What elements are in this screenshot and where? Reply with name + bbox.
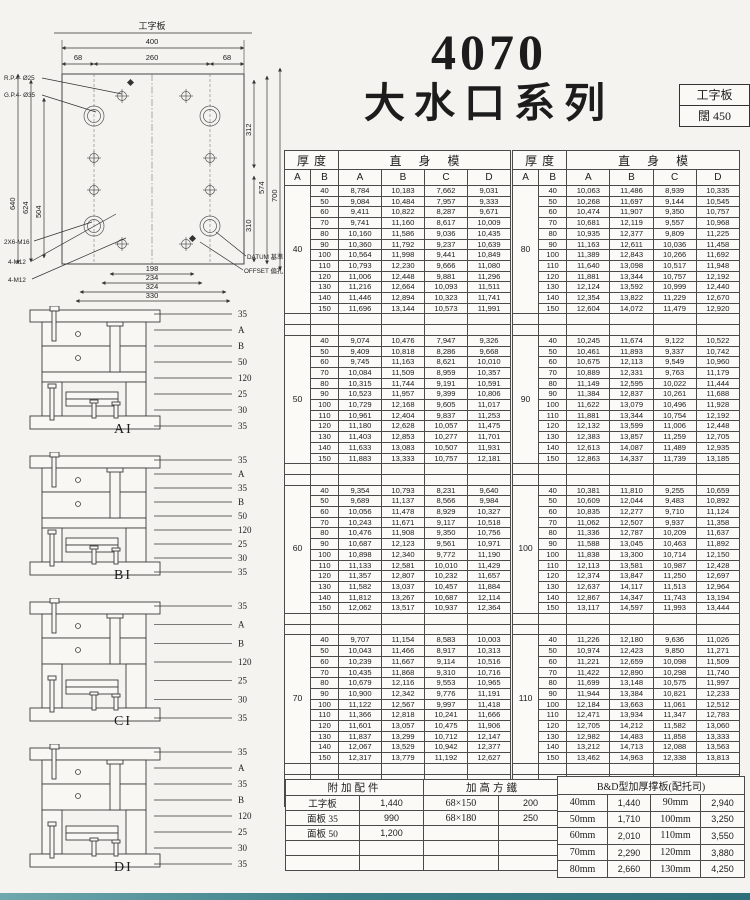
value-cell: 13,267 — [382, 592, 425, 603]
model-number: 4070 — [318, 26, 660, 78]
subheader-row: ABABCD — [285, 170, 511, 186]
column-header: D — [468, 170, 511, 186]
data-row: 8011,33612,78710,20911,637 — [513, 528, 740, 539]
value-cell: 2,660 — [608, 861, 651, 878]
value-cell: 11,812 — [339, 592, 382, 603]
mold-section-sketch: 35AB50120253035 — [26, 306, 278, 434]
straight-mold-header: 直身模 — [567, 151, 740, 170]
section-thickness-a: 100 — [513, 485, 539, 613]
value-cell: 9,255 — [653, 485, 696, 496]
value-cell: 10,381 — [567, 485, 610, 496]
value-cell: 11,509 — [696, 656, 739, 667]
data-row: 11011,88113,34410,75412,192 — [513, 410, 740, 421]
blank-cell — [425, 464, 468, 475]
thickness-b-cell: 90 — [311, 688, 339, 699]
thickness-b-cell: 150 — [311, 453, 339, 464]
value-cell: 12,894 — [382, 293, 425, 304]
value-cell: 9,671 — [468, 207, 511, 218]
value-cell: 11,892 — [696, 539, 739, 550]
blank-cell — [285, 474, 311, 485]
value-cell: 8,286 — [425, 346, 468, 357]
value-cell: 14,483 — [610, 731, 653, 742]
data-row: 14011,44612,89410,32311,741 — [285, 293, 511, 304]
callout-label: 35 — [238, 747, 248, 757]
thickness-b-cell: 130 — [539, 432, 567, 443]
thickness-b-cell: 150 — [311, 303, 339, 314]
blank-cell — [339, 325, 382, 336]
value-cell: 12,377 — [610, 228, 653, 239]
blank-cell — [382, 474, 425, 485]
size-cell: 110mm — [651, 828, 701, 845]
section-thickness-a: 90 — [513, 335, 539, 463]
value-cell: 9,411 — [339, 207, 382, 218]
data-row: 15013,46214,96312,33813,813 — [513, 753, 740, 764]
data-row: 14012,86714,34711,74313,194 — [513, 592, 740, 603]
header-row: 附加配件加高方鐵 — [286, 780, 563, 796]
value-cell: 11,226 — [567, 635, 610, 646]
value-cell: 7,662 — [425, 186, 468, 197]
value-cell: 13,847 — [610, 571, 653, 582]
value-cell: 9,776 — [425, 688, 468, 699]
accessories-table: 附加配件加高方鐵工字板1,44068×150200面板 3599068×1802… — [285, 779, 563, 871]
subheader-row: ABABCD — [513, 170, 740, 186]
mold-plate-plan-drawing: 工字板 400 68 260 68 640 624 504 312 310 57… — [4, 18, 306, 306]
value-cell: 11,154 — [382, 635, 425, 646]
value-cell — [499, 826, 563, 841]
value-cell: 10,942 — [425, 742, 468, 753]
data-row: 1104011,22612,1809,63611,026 — [513, 635, 740, 646]
value-cell: 8,617 — [425, 218, 468, 229]
value-cell: 13,599 — [610, 421, 653, 432]
table-row: 80mm2,660130mm4,250 — [558, 861, 745, 878]
thickness-b-cell: 60 — [539, 656, 567, 667]
thickness-b-cell: 110 — [311, 410, 339, 421]
value-cell: 9,997 — [425, 699, 468, 710]
thickness-b-cell: 50 — [539, 346, 567, 357]
value-cell: 12,670 — [696, 293, 739, 304]
value-cell: 11,513 — [653, 581, 696, 592]
spacer-row — [285, 763, 511, 774]
value-cell: 12,184 — [567, 699, 610, 710]
size-cell: 70mm — [558, 844, 608, 861]
thickness-b-cell: 70 — [311, 367, 339, 378]
data-row: 8011,69913,14810,57511,997 — [513, 678, 740, 689]
data-row: 14012,06713,52910,94212,377 — [285, 742, 511, 753]
value-cell: 9,031 — [468, 186, 511, 197]
value-cell: 10,098 — [653, 656, 696, 667]
value-cell: 10,575 — [653, 678, 696, 689]
spacer-row — [285, 614, 511, 625]
value-cell: 11,336 — [567, 528, 610, 539]
value-cell: 12,982 — [567, 731, 610, 742]
data-row: 8010,47611,9089,35010,756 — [285, 528, 511, 539]
value-cell: 4,250 — [701, 861, 745, 878]
value-cell: 13,934 — [610, 710, 653, 721]
value-cell: 12,920 — [696, 303, 739, 314]
value-cell: 11,475 — [468, 421, 511, 432]
blank-cell — [513, 464, 539, 475]
value-cell: 11,957 — [382, 389, 425, 400]
data-row: 13012,63714,11711,51312,964 — [513, 581, 740, 592]
thickness-b-cell: 140 — [539, 742, 567, 753]
value-cell: 11,179 — [696, 367, 739, 378]
column-header: A — [339, 170, 382, 186]
value-cell: 12,340 — [382, 549, 425, 560]
value-cell: 11,124 — [696, 507, 739, 518]
value-cell: 13,185 — [696, 453, 739, 464]
dim-504: 504 — [34, 205, 43, 218]
data-row: 13012,98214,48311,85813,333 — [513, 731, 740, 742]
column-header: B — [382, 170, 425, 186]
data-row: 10011,12212,5679,99711,418 — [285, 699, 511, 710]
value-cell: 14,072 — [610, 303, 653, 314]
thickness-b-cell: 140 — [311, 442, 339, 453]
data-row: 6010,67512,1139,54910,960 — [513, 357, 740, 368]
value-cell: 11,389 — [567, 250, 610, 261]
value-cell: 11,657 — [468, 571, 511, 582]
blank-cell — [567, 474, 610, 485]
spec-box: 工字板 闊 450 — [679, 84, 750, 127]
value-cell: 10,063 — [567, 186, 610, 197]
value-cell: 11,697 — [610, 196, 653, 207]
dim-198: 198 — [146, 264, 159, 273]
value-cell: 10,754 — [653, 410, 696, 421]
value-cell: 13,194 — [696, 592, 739, 603]
callout-label: B — [238, 795, 244, 805]
value-cell: 12,062 — [339, 603, 382, 614]
value-cell: 12,628 — [382, 421, 425, 432]
data-row: 11011,13312,58110,01011,429 — [285, 560, 511, 571]
value-cell: 2,290 — [608, 844, 651, 861]
value-cell: 12,843 — [610, 250, 653, 261]
value-cell: 10,935 — [567, 228, 610, 239]
column-header: A — [285, 170, 311, 186]
value-cell: 10,757 — [425, 453, 468, 464]
blank-cell — [696, 763, 739, 774]
m12-label-b: 4-M12 — [8, 277, 26, 284]
value-cell: 10,898 — [339, 549, 382, 560]
blank-cell — [311, 474, 339, 485]
value-cell: 11,160 — [382, 218, 425, 229]
value-cell: 9,553 — [425, 678, 468, 689]
value-cell: 12,342 — [382, 688, 425, 699]
value-cell: 11,296 — [468, 271, 511, 282]
thickness-b-cell: 130 — [311, 731, 339, 742]
callout-label: 30 — [238, 843, 248, 853]
value-cell: 11,062 — [567, 517, 610, 528]
value-cell: 10,900 — [339, 688, 382, 699]
thickness-header: 厚度 — [285, 151, 339, 170]
callout-label: 35 — [238, 483, 248, 493]
value-cell: 12,664 — [382, 282, 425, 293]
section-thickness-a: 40 — [285, 186, 311, 314]
section-thickness-a: 60 — [285, 485, 311, 613]
value-cell: 10,961 — [339, 410, 382, 421]
thickness-b-cell: 110 — [539, 410, 567, 421]
value-cell: 11,384 — [567, 389, 610, 400]
data-row: 12011,35712,80710,23211,657 — [285, 571, 511, 582]
blank-cell — [468, 474, 511, 485]
blank-cell — [696, 474, 739, 485]
size-cell: 120mm — [651, 844, 701, 861]
spacer-row — [513, 763, 740, 774]
blank-cell — [539, 474, 567, 485]
value-cell: 9,557 — [653, 218, 696, 229]
data-row: 9010,36011,7929,23710,639 — [285, 239, 511, 250]
size-cell: 60mm — [558, 828, 608, 845]
thickness-b-cell: 70 — [539, 218, 567, 229]
value-cell: 11,122 — [339, 699, 382, 710]
value-cell: 11,637 — [696, 528, 739, 539]
value-cell: 9,074 — [339, 335, 382, 346]
value-cell: 12,659 — [610, 656, 653, 667]
table-row — [286, 856, 563, 871]
thickness-b-cell: 150 — [539, 303, 567, 314]
value-cell: 9,036 — [425, 228, 468, 239]
thickness-b-cell: 40 — [311, 186, 339, 197]
data-row: 12011,18012,62810,05711,475 — [285, 421, 511, 432]
blank-cell — [285, 763, 311, 774]
value-cell: 10,806 — [468, 389, 511, 400]
value-cell: 12,807 — [382, 571, 425, 582]
dim-400: 400 — [146, 37, 159, 46]
value-cell: 10,277 — [425, 432, 468, 443]
data-row: 12012,13213,59911,00612,448 — [513, 421, 740, 432]
value-cell: 11,221 — [567, 656, 610, 667]
value-cell: 9,409 — [339, 346, 382, 357]
data-row: 8010,93512,3779,80911,225 — [513, 228, 740, 239]
thickness-b-cell: 150 — [311, 753, 339, 764]
data-row: 10010,72912,1689,60511,017 — [285, 400, 511, 411]
value-cell: 9,549 — [653, 357, 696, 368]
value-cell: 8,929 — [425, 507, 468, 518]
value-cell: 11,739 — [653, 453, 696, 464]
value-cell: 11,906 — [468, 721, 511, 732]
value-cell: 13,344 — [610, 271, 653, 282]
section-thickness-a: 80 — [513, 186, 539, 314]
blank-cell — [539, 614, 567, 625]
callout-label: 35 — [238, 567, 248, 577]
thickness-b-cell: 40 — [539, 335, 567, 346]
value-cell: 12,428 — [696, 560, 739, 571]
data-row: 5010,26811,6979,14410,545 — [513, 196, 740, 207]
data-row: 15011,88313,33310,75712,181 — [285, 453, 511, 464]
value-cell: 10,889 — [567, 367, 610, 378]
value-cell: 10,675 — [567, 357, 610, 368]
dim-324: 324 — [146, 282, 159, 291]
value-cell: 9,984 — [468, 496, 511, 507]
section-thickness-a: 110 — [513, 635, 539, 763]
callout-label: 30 — [238, 553, 248, 563]
mold-section-diagram: 35AB50120253035AI — [26, 306, 282, 452]
thickness-b-cell: 70 — [539, 517, 567, 528]
value-cell: 10,892 — [696, 496, 739, 507]
value-cell: 9,636 — [653, 635, 696, 646]
value-cell: 11,991 — [468, 303, 511, 314]
value-cell: 9,350 — [425, 528, 468, 539]
bd-thick-plate-table: B&D型加厚撑板(配托司)40mm1,44090mm2,94050mm1,710… — [557, 776, 745, 878]
data-row: 14012,61314,08711,48912,935 — [513, 442, 740, 453]
value-cell: 10,484 — [382, 196, 425, 207]
value-cell: 12,377 — [468, 742, 511, 753]
value-cell: 11,674 — [610, 335, 653, 346]
thickness-b-cell: 120 — [539, 271, 567, 282]
mold-section-sketch: 35A35B50120253035 — [26, 452, 278, 580]
callout-label: B — [238, 638, 244, 648]
blank-cell — [382, 763, 425, 774]
section-diagrams: 35AB50120253035AI35A35B50120253035BI35AB… — [26, 306, 282, 890]
value-cell: 9,144 — [653, 196, 696, 207]
blank-cell — [339, 763, 382, 774]
value-cell: 11,699 — [567, 678, 610, 689]
thickness-b-cell: 90 — [539, 239, 567, 250]
mold-section-diagram: 35A35B50120253035BI — [26, 452, 282, 598]
thickness-b-cell: 100 — [539, 400, 567, 411]
value-cell: 12,180 — [610, 635, 653, 646]
value-cell: 13,813 — [696, 753, 739, 764]
blank-cell — [653, 474, 696, 485]
value-cell: 11,149 — [567, 378, 610, 389]
value-cell: 11,944 — [567, 688, 610, 699]
blank-cell — [468, 624, 511, 635]
accessories-header: 附加配件 — [286, 780, 424, 796]
thickness-b-cell: 110 — [311, 560, 339, 571]
value-cell: 14,337 — [610, 453, 653, 464]
data-row: 15012,06213,51710,93712,364 — [285, 603, 511, 614]
value-cell: 11,881 — [567, 271, 610, 282]
dim-68-right: 68 — [223, 53, 231, 62]
header-row: B&D型加厚撑板(配托司) — [558, 777, 745, 795]
blank-cell — [425, 474, 468, 485]
dim-640: 640 — [8, 197, 17, 210]
value-cell: 10,679 — [339, 678, 382, 689]
size-cell — [424, 841, 499, 856]
blank-cell — [696, 325, 739, 336]
riser-block-header: 加高方鐵 — [424, 780, 563, 796]
blank-cell — [513, 763, 539, 774]
value-cell: 9,689 — [339, 496, 382, 507]
data-row: 10011,38912,84310,26611,692 — [513, 250, 740, 261]
callout-label: A — [238, 325, 245, 335]
spacer-row — [513, 624, 740, 635]
value-cell: 11,692 — [696, 250, 739, 261]
column-header: A — [567, 170, 610, 186]
dim-624: 624 — [21, 201, 30, 214]
value-cell: 11,080 — [468, 260, 511, 271]
callout-label: 50 — [238, 511, 248, 521]
value-cell: 10,793 — [382, 485, 425, 496]
thickness-b-cell: 130 — [311, 581, 339, 592]
data-row: 13012,38313,85711,25912,705 — [513, 432, 740, 443]
offset-label: OFFSET 偏孔 — [244, 266, 284, 275]
thickness-b-cell: 70 — [539, 367, 567, 378]
data-row: 804010,06311,4868,93910,335 — [513, 186, 740, 197]
callout-label: 30 — [238, 694, 248, 704]
data-row: 509,68911,1378,5669,984 — [285, 496, 511, 507]
value-cell: 10,523 — [339, 389, 382, 400]
callout-label: 35 — [238, 421, 248, 431]
thickness-b-cell: 100 — [539, 699, 567, 710]
data-row: 609,41110,8228,2879,671 — [285, 207, 511, 218]
value-cell: 10,968 — [696, 218, 739, 229]
value-cell: 12,581 — [382, 560, 425, 571]
value-cell: 10,849 — [468, 250, 511, 261]
value-cell: 10,712 — [425, 731, 468, 742]
value-cell: 10,999 — [653, 282, 696, 293]
data-row: 11011,64013,09810,51711,948 — [513, 260, 740, 271]
value-cell: 10,435 — [339, 667, 382, 678]
value-cell: 12,440 — [696, 282, 739, 293]
value-cell: 10,239 — [339, 656, 382, 667]
value-cell: 14,347 — [610, 592, 653, 603]
thickness-b-cell: 60 — [311, 357, 339, 368]
thickness-b-cell: 110 — [311, 710, 339, 721]
blank-cell — [311, 325, 339, 336]
callout-label: 35 — [238, 601, 248, 611]
value-cell: 10,003 — [468, 635, 511, 646]
value-cell: 2,940 — [701, 795, 745, 812]
blank-cell — [468, 325, 511, 336]
value-cell: 12,150 — [696, 549, 739, 560]
value-cell: 12,119 — [610, 218, 653, 229]
blank-cell — [539, 464, 567, 475]
value-cell: 12,787 — [610, 528, 653, 539]
value-cell: 990 — [360, 811, 424, 826]
blank-cell — [468, 763, 511, 774]
dim-68-left: 68 — [74, 53, 82, 62]
value-cell: 10,327 — [468, 507, 511, 518]
data-row: 8011,14912,59510,02211,444 — [513, 378, 740, 389]
value-cell: 11,133 — [339, 560, 382, 571]
value-cell: 11,357 — [339, 571, 382, 582]
value-cell: 10,729 — [339, 400, 382, 411]
blank-cell — [567, 464, 610, 475]
value-cell: 1,440 — [360, 796, 424, 811]
blank-cell — [567, 614, 610, 625]
thickness-b-cell: 70 — [539, 667, 567, 678]
value-cell: 10,360 — [339, 239, 382, 250]
value-cell: 11,792 — [382, 239, 425, 250]
value-cell: 10,315 — [339, 378, 382, 389]
value-cell: 11,588 — [567, 539, 610, 550]
thickness-b-cell: 140 — [311, 742, 339, 753]
value-cell: 11,180 — [339, 421, 382, 432]
plate-width: 闊 450 — [680, 105, 749, 126]
value-cell: 10,835 — [567, 507, 610, 518]
blank-cell — [339, 614, 382, 625]
value-cell: 10,573 — [425, 303, 468, 314]
callout-label: 25 — [238, 539, 248, 549]
value-cell: 14,117 — [610, 581, 653, 592]
value-cell: 12,317 — [339, 753, 382, 764]
value-cell: 11,688 — [696, 389, 739, 400]
value-cell: 11,586 — [382, 228, 425, 239]
thickness-b-cell: 140 — [539, 592, 567, 603]
thickness-b-cell: 70 — [311, 517, 339, 528]
value-cell: 10,476 — [339, 528, 382, 539]
m16-label: 2X6-M16 — [4, 239, 30, 246]
value-cell: 3,880 — [701, 844, 745, 861]
data-row: 509,08410,4847,9579,333 — [285, 196, 511, 207]
thickness-b-cell: 80 — [539, 528, 567, 539]
value-cell: 10,591 — [468, 378, 511, 389]
value-cell: 11,006 — [653, 421, 696, 432]
value-cell: 10,517 — [653, 260, 696, 271]
value-cell: 11,883 — [339, 453, 382, 464]
value-cell: 10,457 — [425, 581, 468, 592]
value-cell: 10,313 — [468, 646, 511, 657]
thickness-b-cell: 120 — [311, 571, 339, 582]
